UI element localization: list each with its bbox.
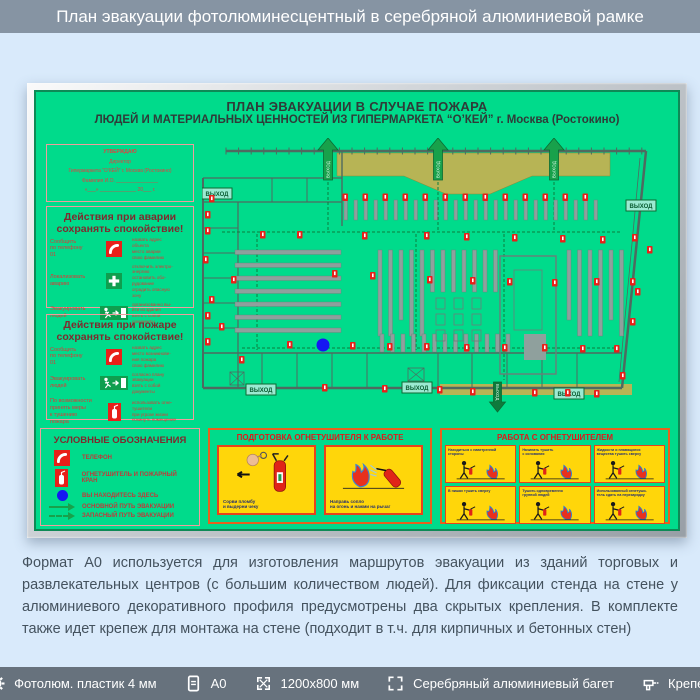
checkout-counter [384, 200, 388, 220]
spec-item: А0 [184, 674, 227, 693]
extinguisher-mark [647, 246, 653, 254]
exit-label: ВЫХОД [626, 200, 656, 211]
display-unit [472, 314, 481, 325]
shelf-rack [420, 250, 424, 336]
accident-box-subtitle: сохранять спокойствие! [57, 223, 184, 235]
spec-label: Серебряный алюминиевый багет [413, 676, 614, 691]
extinguisher-mark [635, 288, 641, 296]
exit-arrow-up: ВЫХОД [318, 138, 338, 180]
extinguisher-mark [231, 276, 237, 284]
fire-actions-box: Действия при пожаре сохранять спокойстви… [46, 314, 194, 420]
prep-cards: Сорви пломбу и выдерни чекуНаправь сопло… [212, 445, 428, 515]
prep-card: Сорви пломбу и выдерни чеку [217, 445, 316, 515]
page-title: План эвакуации фотолюминесцентный в сере… [56, 7, 644, 27]
accident-actions-box: Действия при аварии сохранять спокойстви… [46, 206, 194, 308]
display-unit [436, 314, 445, 325]
svg-text:ВЫХОД: ВЫХОД [630, 204, 654, 210]
shelf-rack [441, 250, 445, 292]
work-card: Находиться с наветренной стороны [445, 445, 516, 483]
shelf-rack [410, 250, 414, 336]
evacuation-plan-board: ПЛАН ЭВАКУАЦИИ В СЛУЧАЕ ПОЖАРА ЛЮДЕЙ И М… [34, 90, 680, 531]
shelf-rack [389, 250, 393, 336]
svg-text:ВЫХОД: ВЫХОД [552, 161, 557, 178]
action-row: Локализовать авариюотключить электро- эн… [47, 262, 193, 300]
checkout-counter [374, 200, 378, 220]
extinguisher-mark [287, 341, 293, 349]
extinguisher-mark [565, 389, 571, 397]
extinguisher-work-panel: РАБОТА С ОГНЕТУШИТЕЛЕМ Находиться с наве… [440, 428, 670, 524]
extinguisher-mark [423, 194, 429, 202]
shelf-rack [235, 328, 341, 333]
pictogram [520, 458, 589, 482]
spec-footer-bar: Фотолюм. пластик 4 ммА01200х800 ммСеребр… [0, 667, 700, 700]
pictogram [595, 458, 664, 482]
action-notes: отключить электро- энергию остановить об… [132, 264, 190, 299]
shelf-rack [235, 263, 341, 268]
extinguisher-mark [332, 270, 338, 278]
checkout-counter [504, 200, 508, 220]
approval-line: «___» _____________ 20___ г. [47, 186, 193, 196]
spec-item: 1200х800 мм [254, 674, 360, 693]
svg-text:ВЫХОД: ВЫХОД [250, 388, 274, 394]
work-caption: Жидкости и плавящиеся вещества тушить св… [595, 446, 664, 456]
shelf-rack [475, 334, 479, 352]
extinguisher-mark [594, 278, 600, 286]
action-label: Эвакуировать людей [50, 376, 96, 390]
extinguisher-mark [503, 194, 509, 202]
fire-rows: Сообщить по телефону 01назвать адрес мес… [47, 343, 193, 426]
work-caption: Тушить одновременно группой людей [520, 487, 589, 497]
work-card: Тушить одновременно группой людей [519, 486, 590, 524]
extinguisher-mark [532, 389, 538, 397]
extinguisher-mark [260, 231, 266, 239]
extinguisher-mark [362, 232, 368, 240]
shelf-rack [567, 250, 571, 320]
display-unit [472, 298, 481, 309]
plan-title-line1: ПЛАН ЭВАКУАЦИИ В СЛУЧАЕ ПОЖАРА [36, 99, 678, 114]
dimensions-icon [254, 674, 273, 693]
action-notes: назвать адрес объекта место аварии свою … [132, 237, 190, 260]
spec-item: Серебряный алюминиевый багет [386, 674, 614, 693]
fire-box-title: Действия при пожаре [63, 319, 176, 331]
shelf-rack [578, 250, 582, 336]
extinguisher-mark [322, 384, 328, 392]
product-description: Формат А0 используется для изготовления … [22, 552, 678, 640]
extinguisher-mark [614, 345, 620, 353]
extinguisher-mark [437, 386, 443, 394]
checkout-counter [434, 200, 438, 220]
checkout-counter [354, 200, 358, 220]
accident-box-title: Действия при аварии [64, 211, 176, 223]
plan-title-line2: ЛЮДЕЙ И МАТЕРИАЛЬНЫХ ЦЕННОСТЕЙ ИЗ ГИПЕРМ… [36, 114, 678, 126]
checkout-counter [394, 200, 398, 220]
work-card: Начинать тушить с основания [519, 445, 590, 483]
plan-title: ПЛАН ЭВАКУАЦИИ В СЛУЧАЕ ПОЖАРА ЛЮДЕЙ И М… [36, 99, 678, 126]
shelf-rack [462, 250, 466, 292]
legend-item: ВЫ НАХОДИТЕСЬ ЗДЕСЬ [47, 490, 193, 501]
checkout-counter [554, 200, 558, 220]
checkout-counter [494, 200, 498, 220]
work-cards: Находиться с наветренной стороныНачинать… [444, 445, 666, 524]
work-caption: Использованный огнетуши- тель сдать на п… [595, 487, 664, 497]
extinguisher-mark [464, 233, 470, 241]
extinguisher-mark [382, 385, 388, 393]
shelf-rack [431, 250, 435, 292]
shelf-rack [609, 250, 613, 320]
extinguisher-mark [203, 256, 209, 264]
shelf-rack [235, 250, 341, 255]
legend-item: ТЕЛЕФОН [47, 450, 193, 466]
cross-icon [106, 273, 122, 289]
svg-text:ВЫХОД: ВЫХОД [326, 161, 331, 178]
extinguisher-mark [483, 194, 489, 202]
legend-rows: ТЕЛЕФОНОГНЕТУШИТЕЛЬ И ПОЖАРНЫЙ КРАНВЫ НА… [41, 450, 199, 519]
extinguisher-mark [383, 194, 389, 202]
action-row: По возможности принять меры к тушению по… [47, 396, 193, 427]
shelf-rack [235, 315, 341, 320]
prep-card: Направь сопло на огонь и нажми на рычаг [324, 445, 423, 515]
display-unit [436, 298, 445, 309]
gear-icon [0, 674, 6, 693]
spec-label: Крепеж [668, 676, 700, 691]
work-panel-title: РАБОТА С ОГНЕТУШИТЕЛЕМ [444, 433, 666, 442]
extinguisher-mark [583, 194, 589, 202]
checkout-counter [444, 200, 448, 220]
spec-label: Фотолюм. пластик 4 мм [14, 676, 157, 691]
legend-item: ЗАПАСНЫЙ ПУТЬ ЭВАКУАЦИИ [47, 513, 193, 519]
extinguisher-mark [630, 318, 636, 326]
legend-title: УСЛОВНЫЕ ОБОЗНАЧЕНИЯ [41, 435, 199, 446]
checkout-counter [344, 200, 348, 220]
checkout-counter [524, 200, 528, 220]
work-caption: Начинать тушить с основания [520, 446, 589, 456]
display-unit [454, 314, 463, 325]
extinguisher-mark [632, 234, 638, 242]
svg-text:ВЫХОД: ВЫХОД [406, 386, 430, 392]
legend-label: ОСНОВНОЙ ПУТЬ ЭВАКУАЦИИ [82, 504, 174, 510]
checkout-counter [364, 200, 368, 220]
floor-plan-drawing: ВЫХОДВЫХОДВЫХОДВЫХОДВЫХОДВЫХОДВЫХОДВЫХОД… [202, 138, 672, 424]
dot-icon [57, 490, 68, 501]
action-label: Сообщить по телефону 01 [50, 347, 96, 368]
shelf-rack [380, 334, 384, 352]
extinguisher-mark [350, 342, 356, 350]
arrow-line [49, 515, 69, 517]
shelf-rack [588, 250, 592, 336]
extinguisher-mark [552, 279, 558, 287]
spec-label: 1200х800 мм [281, 676, 360, 691]
extinguisher-mark [543, 194, 549, 202]
spec-label: А0 [211, 676, 227, 691]
checkout-counter [404, 200, 408, 220]
phone-icon [54, 450, 70, 466]
accident-rows: Сообщить по телефону 01назвать адрес объ… [47, 235, 193, 326]
extinguisher-mark [387, 343, 393, 351]
exit-label: ВЫХОД [246, 384, 276, 395]
extinguisher-mark [363, 194, 369, 202]
prep-caption: Направь сопло на огонь и нажми на рычаг [330, 499, 390, 510]
extinguisher-mark [560, 235, 566, 243]
extinguisher-mark [239, 356, 245, 364]
arrow-line [49, 506, 69, 508]
svg-text:ВЫХОД: ВЫХОД [495, 384, 500, 401]
spec-item: Крепеж [641, 674, 700, 693]
action-row: Эвакуировать людейсогласно плану эвакуац… [47, 370, 193, 396]
action-icon-cell [96, 403, 132, 421]
extinguisher-mark [620, 372, 626, 380]
phone-icon [106, 349, 122, 365]
work-card: В нишах тушить сверху [445, 486, 516, 524]
stairs [230, 372, 244, 385]
approval-line: Фамилия И.О. _______________ [47, 177, 193, 187]
legend-icon-cell [47, 506, 77, 508]
extinguisher-mark [463, 194, 469, 202]
pictogram [446, 499, 515, 523]
shelf-rack [473, 250, 477, 292]
wall [622, 151, 646, 388]
shelf-rack [620, 250, 624, 336]
legend-icon-cell [47, 515, 77, 517]
legend-label: ТЕЛЕФОН [82, 455, 112, 461]
shelf-rack [494, 250, 498, 292]
action-label: По возможности принять меры к тушению по… [50, 398, 96, 426]
evacuation-plan-board-frame: ПЛАН ЭВАКУАЦИИ В СЛУЧАЕ ПОЖАРА ЛЮДЕЙ И М… [27, 83, 687, 538]
extinguisher-mark [600, 236, 606, 244]
pictogram [219, 447, 314, 499]
exit-label: ВЫХОД [402, 382, 432, 393]
shelf-rack [235, 276, 341, 281]
extinguisher-mark [343, 194, 349, 202]
action-icon-cell [96, 349, 132, 365]
work-card: Жидкости и плавящиеся вещества тушить св… [594, 445, 665, 483]
prep-panel-title: ПОДГОТОВКА ОГНЕТУШИТЕЛЯ К РАБОТЕ [212, 433, 428, 442]
action-notes: назвать адрес место возникнове- ния пожа… [132, 345, 190, 368]
extinguisher-mark [424, 343, 430, 351]
extinguisher-mark [219, 323, 225, 331]
extinguisher-mark [297, 231, 303, 239]
exit-icon [100, 376, 128, 390]
extinguisher-mark [209, 195, 215, 203]
checkout-counter [514, 200, 518, 220]
action-label: Сообщить по телефону 01 [50, 239, 96, 260]
checkout-counter [534, 200, 538, 220]
legend-label: ВЫ НАХОДИТЕСЬ ЗДЕСЬ [82, 493, 158, 499]
prep-caption: Сорви пломбу и выдерни чеку [223, 499, 258, 510]
pictogram [446, 458, 515, 482]
extinguisher-icon [55, 469, 68, 487]
central-rack-inner [514, 270, 542, 330]
approval-line: УТВЕРЖДАЮ [47, 148, 193, 158]
approval-box: УТВЕРЖДАЮДиректорГипермаркета “О’КЕЙ” г.… [46, 144, 194, 202]
page-title-banner: План эвакуации фотолюминесцентный в сере… [0, 0, 700, 33]
shelf-rack [452, 250, 456, 292]
extinguisher-mark [580, 345, 586, 353]
shelf-rack [496, 334, 500, 352]
extinguisher-icon [108, 403, 121, 421]
checkout-counter [464, 200, 468, 220]
legend-label: ОГНЕТУШИТЕЛЬ И ПОЖАРНЫЙ КРАН [82, 472, 193, 484]
entrance-zone [337, 153, 610, 194]
checkout-counter [414, 200, 418, 220]
shelf-rack [235, 289, 341, 294]
extinguisher-mark [205, 338, 211, 346]
stairs [408, 368, 424, 381]
work-caption: Находиться с наветренной стороны [446, 446, 515, 456]
extinguisher-mark [403, 194, 409, 202]
extinguisher-mark [464, 344, 470, 352]
arrow-head [68, 512, 75, 520]
extinguisher-prep-panel: ПОДГОТОВКА ОГНЕТУШИТЕЛЯ К РАБОТЕ Сорви п… [208, 428, 432, 524]
extinguisher-mark [512, 234, 518, 242]
you-are-here-dot [317, 339, 330, 352]
work-caption: В нишах тушить сверху [446, 487, 515, 493]
frame-icon [386, 674, 405, 693]
shelf-rack [401, 334, 405, 352]
checkout-counter [484, 200, 488, 220]
extinguisher-mark [427, 276, 433, 284]
legend-item: ОСНОВНОЙ ПУТЬ ЭВАКУАЦИИ [47, 504, 193, 510]
legend-item: ОГНЕТУШИТЕЛЬ И ПОЖАРНЫЙ КРАН [47, 469, 193, 487]
shelf-rack [235, 302, 341, 307]
extinguisher-mark [443, 194, 449, 202]
legend-icon-cell [47, 490, 77, 501]
legend-box: УСЛОВНЫЕ ОБОЗНАЧЕНИЯ ТЕЛЕФОНОГНЕТУШИТЕЛЬ… [40, 428, 200, 526]
checkout-counter [544, 200, 548, 220]
legend-label: ЗАПАСНЫЙ ПУТЬ ЭВАКУАЦИИ [82, 513, 174, 519]
pictogram [326, 447, 421, 499]
approval-line: Директор [47, 158, 193, 168]
spec-item: Фотолюм. пластик 4 мм [0, 674, 157, 693]
checkout-counter [564, 200, 568, 220]
drill-icon [641, 674, 660, 693]
extinguisher-mark [470, 277, 476, 285]
exit-label: ВЫХОД [202, 188, 232, 199]
checkout-counter [454, 200, 458, 220]
document-icon [184, 674, 203, 693]
shelf-rack [412, 334, 416, 352]
extinguisher-mark [563, 194, 569, 202]
shelf-rack [399, 250, 403, 320]
work-card: Использованный огнетуши- тель сдать на п… [594, 486, 665, 524]
pictogram [595, 499, 664, 523]
shelf-rack [378, 250, 382, 336]
action-label: Локализовать аварию [50, 274, 96, 288]
arrow-dashed-icon [49, 515, 75, 517]
extinguisher-mark [424, 232, 430, 240]
svg-text:ВЫХОД: ВЫХОД [436, 161, 441, 178]
extinguisher-mark [209, 296, 215, 304]
shelf-rack [483, 250, 487, 292]
extinguisher-mark [205, 227, 211, 235]
action-icon-cell [96, 273, 132, 289]
action-icon-cell [96, 241, 132, 257]
action-row: Сообщить по телефону 01назвать адрес объ… [47, 235, 193, 261]
checkout-counter [584, 200, 588, 220]
legend-icon-cell [47, 450, 77, 466]
action-notes: согласно плану эвакуации взять с собой д… [132, 372, 190, 395]
extinguisher-mark [205, 211, 211, 219]
approval-line: Гипермаркета “О’КЕЙ” г. Москва (Ростокин… [47, 167, 193, 177]
extinguisher-mark [630, 278, 636, 286]
checkout-counter [474, 200, 478, 220]
checkout-counter [574, 200, 578, 220]
arrow-solid-icon [49, 506, 75, 508]
extinguisher-mark [205, 312, 211, 320]
extinguisher-mark [502, 344, 508, 352]
action-icon-cell [96, 376, 132, 390]
extinguisher-mark [594, 390, 600, 398]
action-row: Сообщить по телефону 01назвать адрес мес… [47, 343, 193, 369]
fire-box-subtitle: сохранять спокойствие! [57, 331, 184, 343]
checkout-counter [424, 200, 428, 220]
extinguisher-mark [470, 388, 476, 396]
pictogram [520, 499, 589, 523]
shelf-rack [485, 334, 489, 352]
checkout-counter [594, 200, 598, 220]
phone-icon [106, 241, 122, 257]
extinguisher-mark [370, 272, 376, 280]
display-unit [454, 298, 463, 309]
shelf-rack [599, 250, 603, 336]
extinguisher-mark [523, 194, 529, 202]
extinguisher-mark [507, 278, 513, 286]
action-notes: использовать огне- тушители при угрозе ж… [132, 400, 190, 423]
arrow-head [68, 503, 75, 511]
legend-icon-cell [47, 469, 77, 487]
extinguisher-mark [542, 344, 548, 352]
